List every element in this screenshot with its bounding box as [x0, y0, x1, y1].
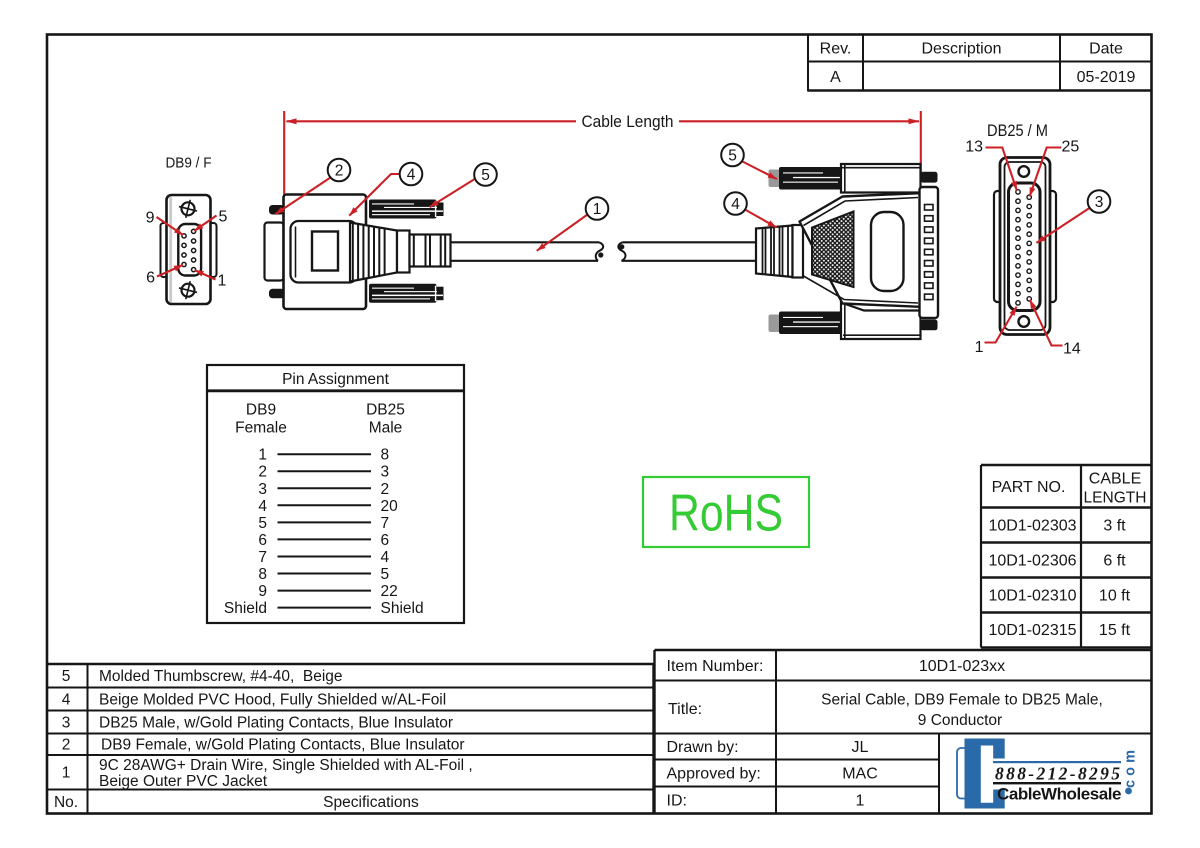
- svg-text:2: 2: [335, 163, 344, 180]
- svg-text:DB9: DB9: [246, 402, 276, 419]
- svg-text:A: A: [830, 69, 841, 86]
- svg-text:No.: No.: [54, 794, 78, 811]
- svg-text:DB25 / M: DB25 / M: [987, 122, 1048, 140]
- svg-text:4: 4: [62, 692, 71, 709]
- svg-text:1: 1: [258, 447, 267, 464]
- svg-text:10D1-02315: 10D1-02315: [988, 622, 1076, 639]
- svg-text:5: 5: [381, 566, 390, 583]
- svg-text:1: 1: [218, 273, 227, 290]
- svg-text:CableWholesale: CableWholesale: [997, 785, 1121, 804]
- svg-text:JL: JL: [852, 739, 869, 756]
- svg-text:Male: Male: [369, 420, 403, 437]
- svg-text:888-212-8295: 888-212-8295: [995, 764, 1120, 784]
- svg-text:MAC: MAC: [842, 766, 878, 783]
- svg-text:PART NO.: PART NO.: [992, 479, 1066, 496]
- svg-text:10D1-02306: 10D1-02306: [988, 553, 1076, 570]
- svg-text:7: 7: [258, 549, 267, 566]
- svg-text:RoHS: RoHS: [669, 485, 783, 543]
- svg-text:15 ft: 15 ft: [1099, 622, 1131, 639]
- svg-text:4: 4: [407, 167, 416, 184]
- svg-text:6: 6: [381, 532, 390, 549]
- svg-text:7: 7: [381, 515, 390, 532]
- svg-text:9 Conductor: 9 Conductor: [918, 712, 1002, 729]
- svg-text:5: 5: [481, 167, 490, 184]
- svg-text:Specifications: Specifications: [323, 794, 419, 811]
- svg-text:DB9 Female, w/Gold Plating Con: DB9 Female, w/Gold Plating Contacts, Blu…: [101, 737, 465, 754]
- svg-text:9: 9: [146, 210, 155, 227]
- svg-text:1: 1: [856, 793, 865, 810]
- svg-text:4: 4: [381, 549, 390, 566]
- svg-text:1: 1: [593, 201, 602, 218]
- svg-text:2: 2: [381, 481, 390, 498]
- svg-text:Serial Cable, DB9 Female to DB: Serial Cable, DB9 Female to DB25 Male,: [821, 692, 1103, 709]
- svg-text:Description: Description: [921, 41, 1001, 58]
- svg-text:DB25: DB25: [366, 402, 405, 419]
- svg-text:Female: Female: [235, 420, 287, 437]
- svg-text:9C 28AWG+ Drain Wire, Single S: 9C 28AWG+ Drain Wire, Single Shielded wi…: [99, 757, 473, 774]
- svg-text:5: 5: [62, 668, 71, 685]
- svg-text:com: com: [1123, 750, 1139, 788]
- svg-text:6 ft: 6 ft: [1103, 553, 1126, 570]
- svg-text:10D1-02303: 10D1-02303: [988, 518, 1076, 535]
- svg-text:8: 8: [381, 447, 390, 464]
- svg-text:9: 9: [258, 583, 267, 600]
- svg-text:20: 20: [381, 498, 399, 515]
- svg-text:Shield: Shield: [224, 600, 267, 617]
- svg-text:14: 14: [1063, 341, 1081, 358]
- svg-text:4: 4: [258, 498, 267, 515]
- svg-text:1: 1: [62, 765, 71, 782]
- svg-text:Drawn by:: Drawn by:: [667, 739, 739, 756]
- svg-text:10 ft: 10 ft: [1099, 588, 1131, 605]
- svg-text:DB25 Male, w/Gold Plating Cont: DB25 Male, w/Gold Plating Contacts, Blue…: [99, 715, 453, 732]
- svg-text:Approved by:: Approved by:: [667, 766, 761, 783]
- svg-text:Beige Outer PVC Jacket: Beige Outer PVC Jacket: [99, 773, 268, 790]
- svg-text:6: 6: [258, 532, 267, 549]
- svg-text:Molded Thumbscrew, #4-40, Bei: Molded Thumbscrew, #4-40, Beige: [99, 668, 343, 685]
- svg-text:8: 8: [258, 566, 267, 583]
- svg-text:Pin Assignment: Pin Assignment: [282, 371, 390, 388]
- svg-text:22: 22: [381, 583, 398, 600]
- svg-text:CABLE: CABLE: [1089, 471, 1141, 488]
- svg-text:5: 5: [728, 148, 737, 165]
- svg-text:3: 3: [62, 715, 71, 732]
- svg-text:10D1-02310: 10D1-02310: [988, 588, 1076, 605]
- svg-text:DB9 / F: DB9 / F: [166, 155, 212, 172]
- svg-text:3: 3: [381, 464, 390, 481]
- svg-text:2: 2: [62, 737, 71, 754]
- svg-text:Date: Date: [1089, 41, 1123, 58]
- svg-text:4: 4: [731, 196, 740, 213]
- svg-text:13: 13: [965, 139, 983, 156]
- svg-text:LENGTH: LENGTH: [1084, 490, 1147, 507]
- svg-text:1: 1: [975, 339, 984, 356]
- svg-text:Cable Length: Cable Length: [582, 113, 674, 131]
- svg-text:5: 5: [258, 515, 267, 532]
- svg-text:Shield: Shield: [381, 600, 424, 617]
- svg-text:3: 3: [1095, 194, 1104, 211]
- svg-text:Title:: Title:: [668, 701, 702, 718]
- svg-text:3: 3: [258, 481, 267, 498]
- svg-text:05-2019: 05-2019: [1077, 69, 1136, 86]
- svg-text:3 ft: 3 ft: [1103, 518, 1126, 535]
- svg-text:5: 5: [219, 209, 228, 226]
- svg-text:25: 25: [1062, 139, 1080, 156]
- svg-text:2: 2: [258, 464, 267, 481]
- svg-text:Rev.: Rev.: [820, 41, 852, 58]
- svg-text:6: 6: [146, 270, 155, 287]
- svg-text:Item Number:: Item Number:: [667, 658, 764, 675]
- svg-text:Beige Molded PVC Hood, Fully S: Beige Molded PVC Hood, Fully Shielded w/…: [99, 692, 446, 709]
- svg-text:ID:: ID:: [667, 793, 687, 810]
- svg-text:10D1-023xx: 10D1-023xx: [919, 658, 1005, 675]
